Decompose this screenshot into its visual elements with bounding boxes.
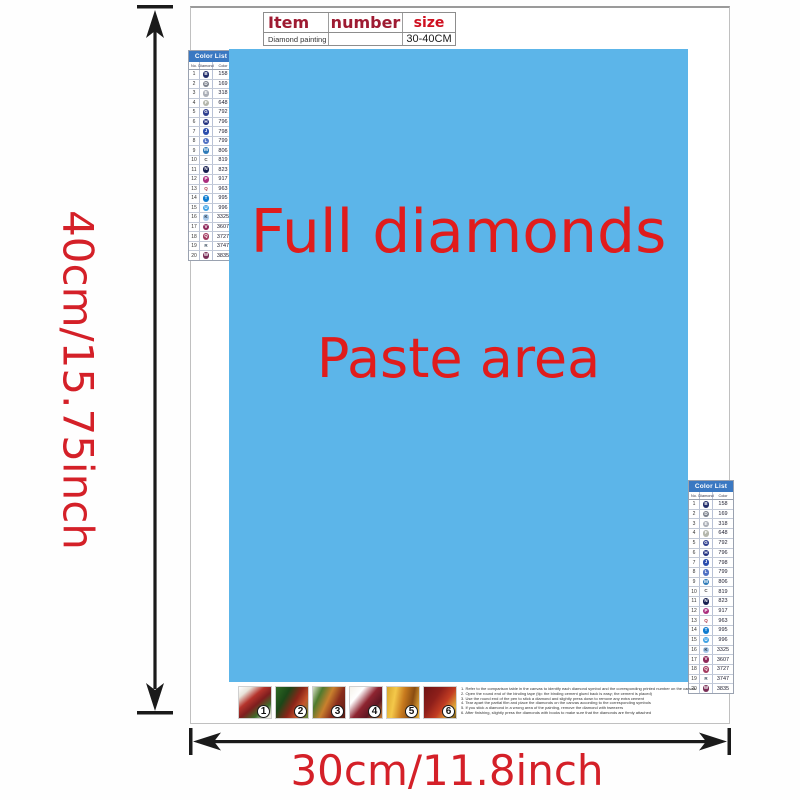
paste-area-title-line2: Paste area [317,327,600,390]
dmc-code: 792 [713,540,733,546]
symbol-cell: N [700,597,713,606]
step-number-badge: 4 [368,705,381,718]
dmc-code: 3727 [713,666,733,672]
row-number: 2 [689,510,700,519]
color-list-row: 2 D 169 [689,510,733,520]
row-number: 3 [689,519,700,528]
diamond-symbol-icon: R [703,676,710,683]
color-list-row: 7 J 798 [189,127,233,137]
row-number: 19 [189,242,200,251]
symbol-cell: J [700,558,713,567]
diamond-symbol-icon: J [203,128,210,135]
instructions-block: 1. Refer to the comparison table in the … [461,687,716,720]
height-dimension-label: 40cm/15.75inch [54,210,103,550]
symbol-cell: L [200,137,213,146]
color-list-row: 16 K 3325 [189,213,233,223]
color-list-row: 3 E 318 [189,89,233,99]
spec-header-item: Item [264,13,329,32]
symbol-cell: L [700,568,713,577]
symbol-cell: N [200,165,213,174]
dmc-code: 823 [713,598,733,604]
color-list-title: Color List [189,51,233,62]
symbol-cell: V [700,655,713,664]
color-list-row: 17 V 3607 [189,223,233,233]
diamond-symbol-icon: G [703,540,710,547]
step-number-badge: 3 [331,705,344,718]
color-list-row: 9 M 806 [689,578,733,588]
diamond-symbol-icon: B [203,71,210,78]
dmc-code: 158 [713,501,733,507]
color-list-row: 18 Q 3727 [689,665,733,675]
color-list-row: 6 H 796 [689,549,733,559]
symbol-cell: D [700,510,713,519]
dmc-code: 3325 [713,647,733,653]
symbol-cell: P [200,175,213,184]
diamond-symbol-icon: M [203,147,210,154]
spec-value-size: 30-40CM [403,33,455,45]
diamond-symbol-icon: H [203,119,210,126]
diamond-symbol-icon: D [203,81,210,88]
color-list-row: 14 T 995 [689,626,733,636]
symbol-cell: K [200,213,213,222]
color-list-row: 11 N 823 [189,165,233,175]
row-number: 11 [689,597,700,606]
diamond-symbol-icon: K [703,647,710,654]
diamond-symbol-icon: B [703,501,710,508]
diamond-symbol-icon: D [703,511,710,518]
step-thumbnail-image: 6 [423,686,457,719]
row-number: 4 [689,529,700,538]
symbol-cell: P [700,607,713,616]
row-number: 6 [689,549,700,558]
color-list-column-headers: No. Diamond Color [689,492,733,500]
dmc-code: 798 [713,560,733,566]
color-list-row: 10 C 819 [189,156,233,166]
diamond-symbol-icon: E [203,90,210,97]
row-number: 18 [189,232,200,241]
symbol-cell: F [700,529,713,538]
color-list-row: 4 F 648 [189,99,233,109]
color-list-row: 19 R 3747 [689,675,733,685]
symbol-cell: M [200,146,213,155]
symbol-cell: R [200,242,213,251]
row-number: 1 [189,70,200,79]
spec-value-number [329,33,403,45]
vertical-dimension-arrow [133,5,177,717]
diamond-symbol-icon: J [703,559,710,566]
symbol-cell: Q [200,185,213,194]
step-number-badge: 5 [405,705,418,718]
color-list-row: 10 C 819 [689,587,733,597]
diamond-symbol-icon: W [203,252,210,259]
dmc-code: 169 [713,511,733,517]
color-list-row: 18 Q 3727 [189,232,233,242]
paste-area-title-line1: Full diamonds [251,197,667,267]
dmc-code: 806 [713,579,733,585]
diamond-symbol-icon: F [703,530,710,537]
dmc-code: 996 [713,637,733,643]
symbol-cell: E [200,89,213,98]
color-list-row: 12 P 917 [689,607,733,617]
color-list-rows: 1 B 158 2 D 169 [189,70,233,260]
spec-table: Item number size Diamond painting 30-40C… [263,12,456,46]
row-number: 13 [689,616,700,625]
row-number: 18 [689,665,700,674]
color-list-row: 20 W 3835 [189,251,233,260]
diamond-symbol-icon: Q [703,618,710,625]
row-number: 13 [189,185,200,194]
dmc-code: 917 [713,608,733,614]
color-list-row: 1 B 158 [689,500,733,510]
diamond-symbol-icon: N [703,598,710,605]
row-number: 10 [689,587,700,596]
symbol-cell: G [700,539,713,548]
row-number: 10 [189,156,200,165]
step-thumbnail-image: 1 [238,686,272,719]
instruction-line: 6. After finishing, slightly press the d… [461,711,716,716]
color-list-left: Color List No. Diamond Color 1 B 158 [188,50,234,261]
color-list-row: 13 Q 963 [189,185,233,195]
symbol-cell: U [700,636,713,645]
color-list-row: 5 G 792 [689,539,733,549]
diamond-symbol-icon: C [203,157,210,164]
row-number: 12 [189,175,200,184]
step-number-badge: 1 [257,705,270,718]
dmc-code: 318 [713,521,733,527]
paste-area: Full diamonds Paste area [229,49,688,682]
row-number: 7 [689,558,700,567]
symbol-cell: J [200,127,213,136]
dmc-code: 3607 [713,657,733,663]
row-number: 17 [189,223,200,232]
symbol-cell: G [200,108,213,117]
diamond-symbol-icon: T [703,627,710,634]
symbol-cell: V [200,223,213,232]
row-number: 3 [189,89,200,98]
row-number: 16 [689,646,700,655]
symbol-cell: R [700,675,713,684]
symbol-cell: B [700,500,713,509]
row-number: 11 [189,165,200,174]
row-number: 7 [189,127,200,136]
color-list-row: 4 F 648 [689,529,733,539]
dmc-code: 648 [713,530,733,536]
row-number: 8 [189,137,200,146]
row-number: 14 [689,626,700,635]
color-list-row: 15 U 996 [189,204,233,214]
diamond-symbol-icon: P [703,608,710,615]
color-list-row: 12 P 917 [189,175,233,185]
diamond-symbol-icon: E [703,521,710,528]
diamond-symbol-icon: R [203,243,210,250]
symbol-cell: H [700,549,713,558]
row-number: 1 [689,500,700,509]
row-number: 15 [689,636,700,645]
color-list-title: Color List [689,481,733,492]
color-list-row: 16 K 3325 [689,646,733,656]
row-number: 15 [189,204,200,213]
row-number: 5 [689,539,700,548]
step-number-badge: 6 [442,705,455,718]
step-thumbnail-image: 3 [312,686,346,719]
color-list-row: 8 L 799 [189,137,233,147]
step-thumbnail-image: 2 [275,686,309,719]
symbol-cell: F [200,99,213,108]
symbol-cell: M [700,578,713,587]
symbol-cell: U [200,204,213,213]
diamond-symbol-icon: H [703,550,710,557]
symbol-cell: T [200,194,213,203]
step-thumbnail-image: 5 [386,686,420,719]
diamond-symbol-icon: M [703,579,710,586]
color-list-row: 11 N 823 [689,597,733,607]
diamond-symbol-icon: V [203,224,210,231]
col-symbol: Diamond [700,492,713,499]
dmc-code: 963 [713,618,733,624]
row-number: 5 [189,108,200,117]
row-number: 2 [189,80,200,89]
diamond-symbol-icon: U [203,205,210,212]
row-number: 19 [689,675,700,684]
col-symbol: Diamond [200,62,213,69]
dmc-code: 995 [713,627,733,633]
spec-header-number: number [329,13,403,32]
dmc-code: 796 [713,550,733,556]
spec-header-size: size [403,13,455,32]
color-list-row: 13 Q 963 [689,616,733,626]
spec-table-value-row: Diamond painting 30-40CM [264,33,455,45]
symbol-cell: Q [700,616,713,625]
step-number-badge: 2 [294,705,307,718]
dmc-code: 799 [713,569,733,575]
step-thumbnail-image: 4 [349,686,383,719]
color-list-row: 6 H 796 [189,118,233,128]
symbol-cell: Q [200,232,213,241]
color-list-row: 3 E 318 [689,519,733,529]
symbol-cell: K [700,646,713,655]
diamond-symbol-icon: G [203,109,210,116]
color-list-rows: 1 B 158 2 D 169 [689,500,733,693]
symbol-cell: C [200,156,213,165]
diamond-symbol-icon: Q [203,233,210,240]
row-number: 12 [689,607,700,616]
dmc-code: 3835 [713,686,733,692]
symbol-cell: T [700,626,713,635]
symbol-cell: B [200,70,213,79]
diamond-symbol-icon: Q [703,666,710,673]
step-thumbnails: 1 2 3 4 5 6 [238,686,457,719]
diamond-symbol-icon: Q [203,186,210,193]
color-list-row: 7 J 798 [689,558,733,568]
symbol-cell: C [700,587,713,596]
diamond-symbol-icon: P [203,176,210,183]
canvas-sheet: Item number size Diamond painting 30-40C… [190,6,730,724]
color-list-row: 1 B 158 [189,70,233,80]
symbol-cell: H [200,118,213,127]
row-number: 17 [689,655,700,664]
color-list-column-headers: No. Diamond Color [189,62,233,70]
row-number: 4 [189,99,200,108]
row-number: 9 [189,146,200,155]
spec-value-item: Diamond painting [264,33,329,45]
dmc-code: 3747 [713,676,733,682]
diamond-painting-size-infographic: 40cm/15.75inch 30cm/11.8inch Item number… [0,0,800,800]
color-list-row: 17 V 3607 [689,655,733,665]
diamond-symbol-icon: U [703,637,710,644]
color-list-row: 2 D 169 [189,80,233,90]
row-number: 6 [189,118,200,127]
color-list-row: 9 M 806 [189,146,233,156]
color-list-row: 19 R 3747 [189,242,233,252]
row-number: 9 [689,578,700,587]
symbol-cell: Q [700,665,713,674]
diamond-symbol-icon: F [203,100,210,107]
color-list-right: Color List No. Diamond Color 1 B 158 [688,480,734,694]
color-list-row: 8 L 799 [689,568,733,578]
diamond-symbol-icon: V [703,656,710,663]
width-dimension-label: 30cm/11.8inch [290,746,603,795]
spec-table-header-row: Item number size [264,13,455,33]
diamond-symbol-icon: K [203,214,210,221]
diamond-symbol-icon: T [203,195,210,202]
color-list-row: 15 U 996 [689,636,733,646]
row-number: 8 [689,568,700,577]
color-list-row: 5 G 792 [189,108,233,118]
row-number: 16 [189,213,200,222]
symbol-cell: D [200,80,213,89]
dmc-code: 819 [713,589,733,595]
row-number: 14 [189,194,200,203]
symbol-cell: E [700,519,713,528]
symbol-cell: W [200,251,213,260]
row-number: 20 [189,251,200,260]
col-color: Color [713,492,733,499]
color-list-row: 14 T 995 [189,194,233,204]
diamond-symbol-icon: L [703,569,710,576]
diamond-symbol-icon: N [203,166,210,173]
diamond-symbol-icon: L [203,138,210,145]
diamond-symbol-icon: C [703,588,710,595]
